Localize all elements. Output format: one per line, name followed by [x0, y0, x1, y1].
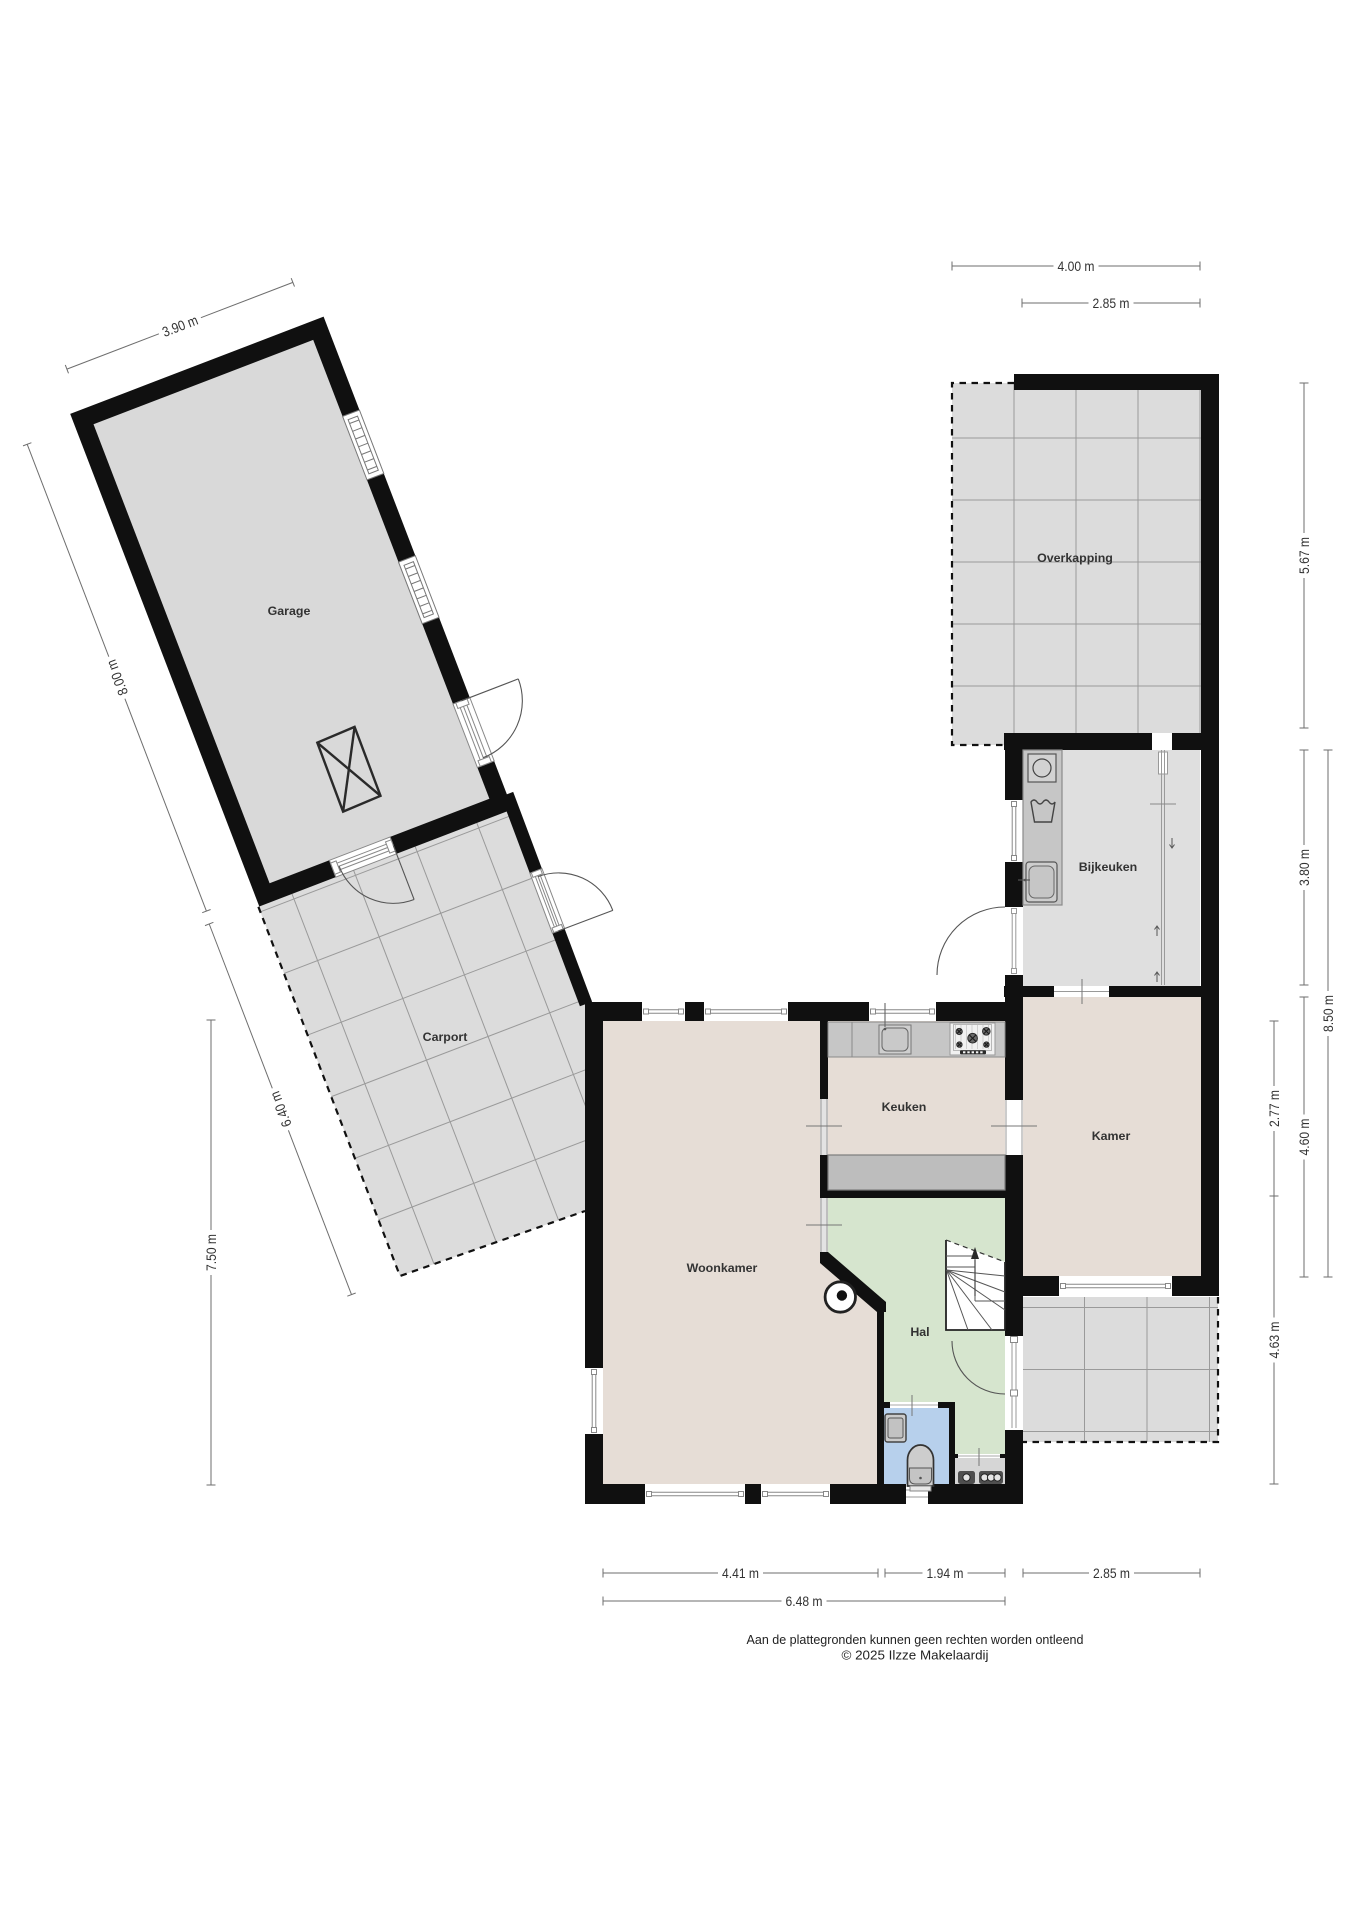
- svg-text:5.67 m: 5.67 m: [1296, 537, 1312, 574]
- svg-text:1.94 m: 1.94 m: [927, 1565, 964, 1581]
- svg-text:Carport: Carport: [423, 1030, 468, 1044]
- svg-text:Keuken: Keuken: [882, 1100, 927, 1114]
- svg-text:4.60 m: 4.60 m: [1296, 1119, 1312, 1156]
- svg-text:4.00 m: 4.00 m: [1058, 258, 1095, 274]
- svg-text:Woonkamer: Woonkamer: [687, 1261, 758, 1275]
- svg-text:2.77 m: 2.77 m: [1266, 1090, 1282, 1127]
- svg-text:© 2025 Ilzze Makelaardij: © 2025 Ilzze Makelaardij: [842, 1648, 989, 1663]
- svg-text:7.50 m: 7.50 m: [203, 1234, 219, 1271]
- svg-text:2.85 m: 2.85 m: [1093, 1565, 1130, 1581]
- svg-text:Kamer: Kamer: [1092, 1129, 1131, 1143]
- svg-text:4.41 m: 4.41 m: [722, 1565, 759, 1581]
- svg-text:Overkapping: Overkapping: [1037, 551, 1113, 565]
- svg-text:Hal: Hal: [910, 1325, 929, 1339]
- svg-text:Bijkeuken: Bijkeuken: [1079, 860, 1138, 874]
- svg-text:2.85 m: 2.85 m: [1093, 295, 1130, 311]
- svg-text:8.50 m: 8.50 m: [1320, 995, 1336, 1032]
- svg-text:4.63 m: 4.63 m: [1266, 1322, 1282, 1359]
- svg-text:Aan de plattegronden kunnen ge: Aan de plattegronden kunnen geen rechten…: [747, 1632, 1084, 1647]
- svg-text:Garage: Garage: [268, 604, 311, 618]
- svg-text:3.80 m: 3.80 m: [1296, 849, 1312, 886]
- svg-text:6.48 m: 6.48 m: [786, 1593, 823, 1609]
